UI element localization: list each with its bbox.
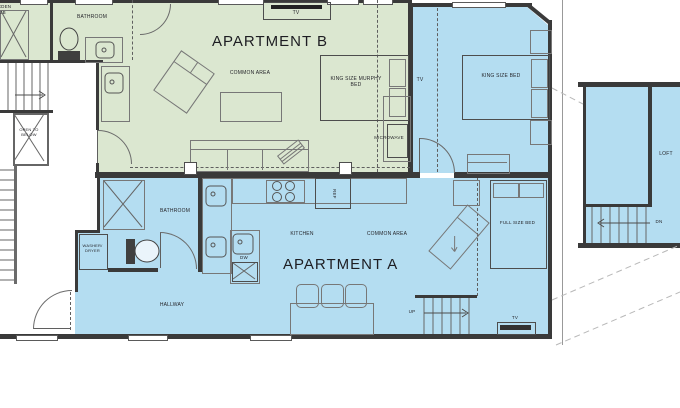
- dishwasher-label: DW: [234, 255, 254, 261]
- dn-label: DN: [651, 219, 667, 225]
- washer-dryer-label: WASHER/ DRYER: [81, 243, 104, 253]
- common-area-b-label: COMMON AREA: [225, 70, 275, 76]
- sink: [206, 237, 226, 257]
- roof-line: [552, 88, 583, 104]
- sofa-throw: [278, 140, 305, 164]
- roof-line: [556, 292, 680, 345]
- king-bed-label: KING SIZE BED: [473, 73, 529, 79]
- up-label: UP: [404, 309, 420, 315]
- kitchen-label: KITCHEN: [284, 231, 320, 237]
- stairs-up-treads: [424, 298, 469, 334]
- hallway-label: HALLWAY: [150, 302, 194, 308]
- burner: [273, 182, 282, 191]
- bedroom-chamfer-mask: [527, 7, 548, 25]
- loft-label: LOFT: [652, 151, 680, 157]
- apartment-a-title: APARTMENT A: [283, 256, 387, 273]
- plan-linework: [0, 0, 680, 408]
- common-area-a-label: COMMON AREA: [362, 231, 412, 237]
- apartment-b-title: APARTMENT B: [212, 33, 312, 50]
- burner: [273, 193, 282, 202]
- open-to-below-x: [14, 114, 44, 161]
- murphy-bed-label: KING SIZE MURPHY BED: [330, 76, 382, 89]
- full-bed-label: FULL SIZE BED: [492, 220, 543, 226]
- stairs-top-treads: [8, 63, 48, 110]
- open-to-below-label: OPEN TO BELOW: [15, 127, 43, 137]
- tv-a-label: TV: [506, 315, 524, 321]
- tub-x: [1, 11, 26, 57]
- floor-plan: APARTMENT B APARTMENT A BATHROOM GARDEN …: [0, 0, 680, 408]
- tv-b-label: TV: [283, 10, 309, 16]
- sink: [96, 42, 114, 58]
- refrigerator-label: REF: [327, 183, 337, 205]
- shower-x: [104, 181, 142, 227]
- burner: [286, 193, 295, 202]
- stairs-dn-arrow: [598, 219, 650, 227]
- sink: [233, 234, 253, 254]
- toilet-b: [58, 28, 80, 60]
- dishwasher-x: [233, 263, 255, 279]
- garden-tub-label: GARDEN TUB: [0, 4, 16, 15]
- stairs-left-treads: [0, 170, 14, 280]
- microwave-label: MICROWAVE: [367, 135, 411, 141]
- roof-line: [552, 245, 680, 300]
- burner: [286, 182, 295, 191]
- bathroom-b-label: BATHROOM: [70, 14, 114, 20]
- stairs-up-arrow: [424, 309, 468, 317]
- chaise-a: [429, 205, 489, 269]
- armchair-b: [154, 51, 214, 113]
- sink: [206, 186, 226, 206]
- toilet-a: [126, 239, 159, 264]
- stairs-top-arrow: [15, 91, 45, 99]
- tv-bedroom-label: TV: [412, 77, 428, 83]
- bathroom-a-label: BATHROOM: [155, 208, 195, 214]
